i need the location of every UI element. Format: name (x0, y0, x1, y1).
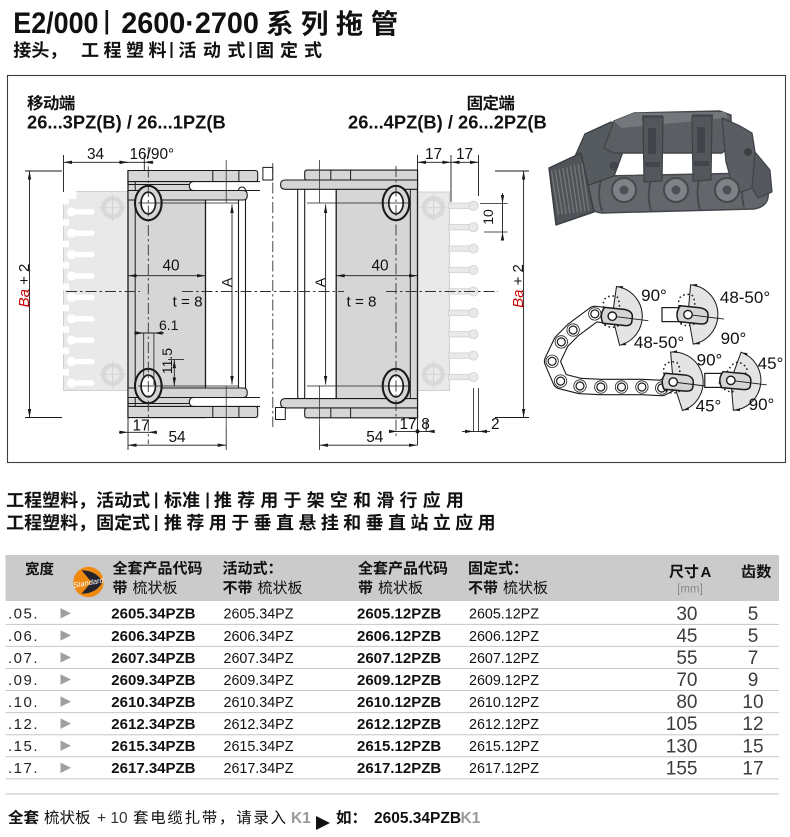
svg-text:17: 17 (132, 417, 149, 434)
svg-text:17: 17 (425, 146, 442, 163)
svg-text:80: 80 (676, 692, 697, 713)
svg-text:.15.: .15. (8, 738, 39, 755)
svg-text:2610.12PZB: 2610.12PZB (357, 694, 441, 711)
svg-text:2617.34PZB: 2617.34PZB (111, 760, 195, 777)
svg-text:10: 10 (742, 692, 763, 713)
svg-text:17: 17 (456, 146, 473, 163)
svg-text:A: A (312, 277, 328, 287)
svg-text:40: 40 (371, 258, 388, 275)
svg-text:2606.12PZB: 2606.12PZB (357, 628, 441, 645)
svg-text:t = 8: t = 8 (173, 293, 203, 310)
svg-text:2605.34PZB: 2605.34PZB (111, 606, 195, 623)
svg-text:90°: 90° (721, 329, 747, 348)
svg-text:2617.12PZ: 2617.12PZ (469, 761, 539, 777)
svg-text:Ba + 2: Ba + 2 (510, 264, 527, 308)
svg-text:9: 9 (748, 670, 759, 691)
svg-text:K1: K1 (291, 810, 311, 827)
svg-text:90°: 90° (641, 286, 667, 305)
svg-text:t = 8: t = 8 (347, 293, 377, 310)
svg-text:2606.12PZ: 2606.12PZ (469, 629, 539, 645)
svg-text:2609.12PZ: 2609.12PZ (469, 673, 539, 689)
svg-text:2609.34PZB: 2609.34PZB (111, 672, 195, 689)
svg-text:45°: 45° (758, 354, 784, 373)
svg-text:54: 54 (168, 429, 186, 446)
svg-text:.07.: .07. (8, 650, 39, 667)
svg-text:2617.34PZ: 2617.34PZ (224, 761, 294, 777)
svg-text:2612.12PZB: 2612.12PZB (357, 716, 441, 733)
svg-text:12: 12 (742, 714, 763, 735)
svg-text:90°: 90° (697, 351, 723, 370)
svg-text:A: A (219, 277, 235, 287)
svg-text:5: 5 (748, 604, 759, 625)
svg-text:2615.34PZB: 2615.34PZB (111, 738, 195, 755)
svg-text:+ 10: + 10 (97, 810, 128, 827)
svg-text:2607.34PZ: 2607.34PZ (224, 651, 294, 667)
svg-text:2610.34PZ: 2610.34PZ (224, 695, 294, 711)
svg-text:.10.: .10. (8, 694, 39, 711)
svg-text:6.1: 6.1 (159, 317, 179, 333)
svg-text:Ba + 2: Ba + 2 (16, 264, 33, 308)
svg-text:54: 54 (366, 429, 384, 446)
svg-text:45°: 45° (696, 397, 722, 416)
svg-text:155: 155 (666, 758, 698, 779)
svg-text:.06.: .06. (8, 628, 39, 645)
svg-text:2607.12PZB: 2607.12PZB (357, 650, 441, 667)
svg-text:2605.12PZB: 2605.12PZB (357, 606, 441, 623)
svg-text:48-50°: 48-50° (634, 333, 684, 352)
svg-text:2607.12PZ: 2607.12PZ (469, 651, 539, 667)
svg-text:2612.34PZ: 2612.34PZ (224, 717, 294, 733)
svg-text:130: 130 (666, 736, 698, 757)
svg-text:2605.34PZB: 2605.34PZB (374, 810, 461, 827)
svg-text:2607.34PZB: 2607.34PZB (111, 650, 195, 667)
svg-text:16/90°: 16/90° (130, 146, 175, 163)
svg-text:30: 30 (676, 604, 697, 625)
svg-text:34: 34 (87, 146, 105, 163)
svg-text:2612.34PZB: 2612.34PZB (111, 716, 195, 733)
svg-text:2612.12PZ: 2612.12PZ (469, 717, 539, 733)
svg-text:[mm]: [mm] (677, 584, 703, 596)
svg-text:E2/000: E2/000 (13, 7, 98, 40)
svg-text:2606.34PZ: 2606.34PZ (224, 629, 294, 645)
svg-text:7: 7 (748, 648, 759, 669)
svg-text:2605.12PZ: 2605.12PZ (469, 607, 539, 623)
svg-text:2: 2 (491, 416, 500, 433)
svg-text:8: 8 (421, 416, 430, 433)
svg-text:17: 17 (742, 758, 763, 779)
svg-text:40: 40 (162, 257, 179, 274)
svg-text:26...3PZ(B) / 26...1PZ(B: 26...3PZ(B) / 26...1PZ(B (27, 113, 226, 133)
svg-text:2615.12PZ: 2615.12PZ (469, 739, 539, 755)
svg-text:17: 17 (399, 416, 416, 433)
svg-text:11.5: 11.5 (159, 348, 175, 374)
svg-text:.12.: .12. (8, 716, 39, 733)
svg-text:10: 10 (480, 209, 496, 225)
svg-text:.09.: .09. (8, 672, 39, 689)
svg-text:90°: 90° (749, 395, 775, 414)
svg-text:70: 70 (676, 670, 697, 691)
svg-text:2610.34PZB: 2610.34PZB (111, 694, 195, 711)
svg-text:55: 55 (676, 648, 697, 669)
svg-text:105: 105 (666, 714, 698, 735)
svg-text:45: 45 (676, 626, 697, 647)
svg-text:2610.12PZ: 2610.12PZ (469, 695, 539, 711)
svg-text:2609.12PZB: 2609.12PZB (357, 672, 441, 689)
svg-text:K1: K1 (461, 810, 481, 827)
svg-text:2615.34PZ: 2615.34PZ (224, 739, 294, 755)
svg-text:15: 15 (742, 736, 763, 757)
svg-text:2605.34PZ: 2605.34PZ (224, 607, 294, 623)
svg-text:2615.12PZB: 2615.12PZB (357, 738, 441, 755)
svg-text:2600·2700: 2600·2700 (121, 7, 259, 40)
svg-text:48-50°: 48-50° (720, 288, 770, 307)
svg-text:5: 5 (748, 626, 759, 647)
svg-text:.05.: .05. (8, 606, 39, 623)
svg-text:.17.: .17. (8, 760, 39, 777)
svg-text:A: A (701, 564, 712, 581)
svg-text:2606.34PZB: 2606.34PZB (111, 628, 195, 645)
svg-text:2617.12PZB: 2617.12PZB (357, 760, 441, 777)
svg-text:26...4PZ(B) / 26...2PZ(B: 26...4PZ(B) / 26...2PZ(B (348, 113, 547, 133)
svg-text:2609.34PZ: 2609.34PZ (224, 673, 294, 689)
